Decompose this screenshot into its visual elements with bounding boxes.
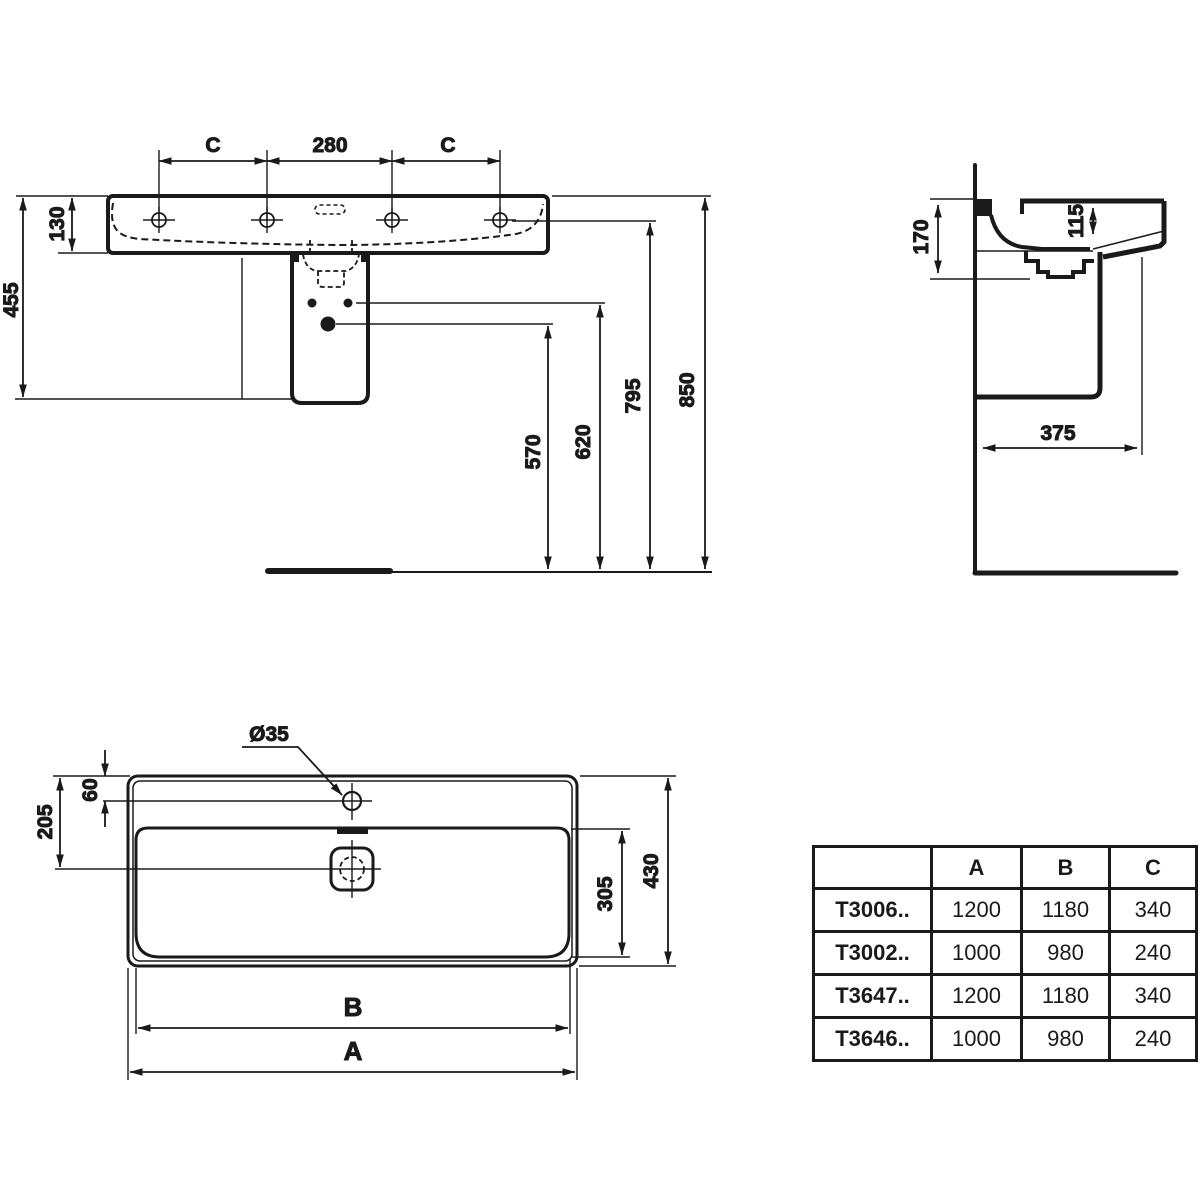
value-c: 340 <box>1110 889 1197 932</box>
value-c: 240 <box>1110 1018 1197 1061</box>
product-code: T3646.. <box>814 1018 932 1061</box>
value-b: 980 <box>1022 1018 1110 1061</box>
dim-label-795: 795 <box>622 378 645 413</box>
plan-overflow-mark <box>337 827 368 834</box>
pedestal-joint-right <box>361 254 368 262</box>
dim-label-hole-dia: Ø35 <box>249 723 289 746</box>
header-blank <box>814 847 932 889</box>
faucet-holes <box>143 207 516 233</box>
side-dimensions <box>930 199 1142 455</box>
dim-label-60: 60 <box>79 778 102 801</box>
dim-label-b: B <box>344 992 363 1022</box>
dim-label-620: 620 <box>572 424 595 459</box>
dim-label-280: 280 <box>312 134 347 157</box>
value-b: 1180 <box>1022 889 1110 932</box>
dim-label-375: 375 <box>1040 422 1075 445</box>
dim-label-130: 130 <box>46 206 69 241</box>
dim-label-115: 115 <box>1065 204 1088 238</box>
fixing-hole-right <box>344 299 353 308</box>
value-c: 340 <box>1110 975 1197 1018</box>
product-code: T3647.. <box>814 975 932 1018</box>
outlet-hole <box>321 317 336 332</box>
hole-dia-leader <box>242 747 342 795</box>
front-view: C 280 C 130 455 570 620 795 850 <box>0 134 712 572</box>
dim-label-430: 430 <box>640 853 663 888</box>
value-c: 240 <box>1110 932 1197 975</box>
product-code: T3002.. <box>814 932 932 975</box>
table-row: T3006.. 1200 1180 340 <box>814 889 1197 932</box>
table-row: T3647.. 1200 1180 340 <box>814 975 1197 1018</box>
header-a: A <box>932 847 1022 889</box>
dim-label-205: 205 <box>34 804 57 839</box>
table-row: T3646.. 1000 980 240 <box>814 1018 1197 1061</box>
header-b: B <box>1022 847 1110 889</box>
dim-label-850: 850 <box>676 372 699 407</box>
plan-view: Ø35 60 205 305 430 B <box>34 723 676 1080</box>
plan-drain <box>55 840 381 898</box>
side-view: 170 115 375 <box>910 165 1176 573</box>
plan-left-dimensions <box>53 750 130 867</box>
value-a: 1200 <box>932 975 1022 1018</box>
overflow-slot <box>315 205 345 214</box>
dim-label-170: 170 <box>910 219 933 254</box>
dim-label-455: 455 <box>0 282 23 317</box>
dim-label-a: A <box>344 1036 363 1066</box>
dim-label-c-left: C <box>205 134 220 157</box>
dim-label-c-right: C <box>440 134 455 157</box>
dim-label-305: 305 <box>594 876 617 911</box>
product-code: T3006.. <box>814 889 932 932</box>
value-b: 980 <box>1022 932 1110 975</box>
table-row: T3002.. 1000 980 240 <box>814 932 1197 975</box>
plan-tap-hole <box>103 783 372 820</box>
pedestal-joint-left <box>292 254 299 262</box>
spec-table-header-row: A B C <box>814 847 1197 889</box>
trap-hidden-lines <box>303 240 359 287</box>
spec-table: A B C T3006.. 1200 1180 340 T3002.. 1000… <box>812 845 1198 1062</box>
dim-label-570: 570 <box>522 434 545 469</box>
header-c: C <box>1110 847 1197 889</box>
value-a: 1000 <box>932 932 1022 975</box>
washbasin-dimension-drawing: C 280 C 130 455 570 620 795 850 <box>0 0 1200 1200</box>
value-a: 1200 <box>932 889 1022 932</box>
fixing-hole-left <box>308 299 317 308</box>
value-a: 1000 <box>932 1018 1022 1061</box>
bowl-hidden-line <box>112 203 543 245</box>
front-top-dimensions <box>159 150 500 221</box>
value-b: 1180 <box>1022 975 1110 1018</box>
